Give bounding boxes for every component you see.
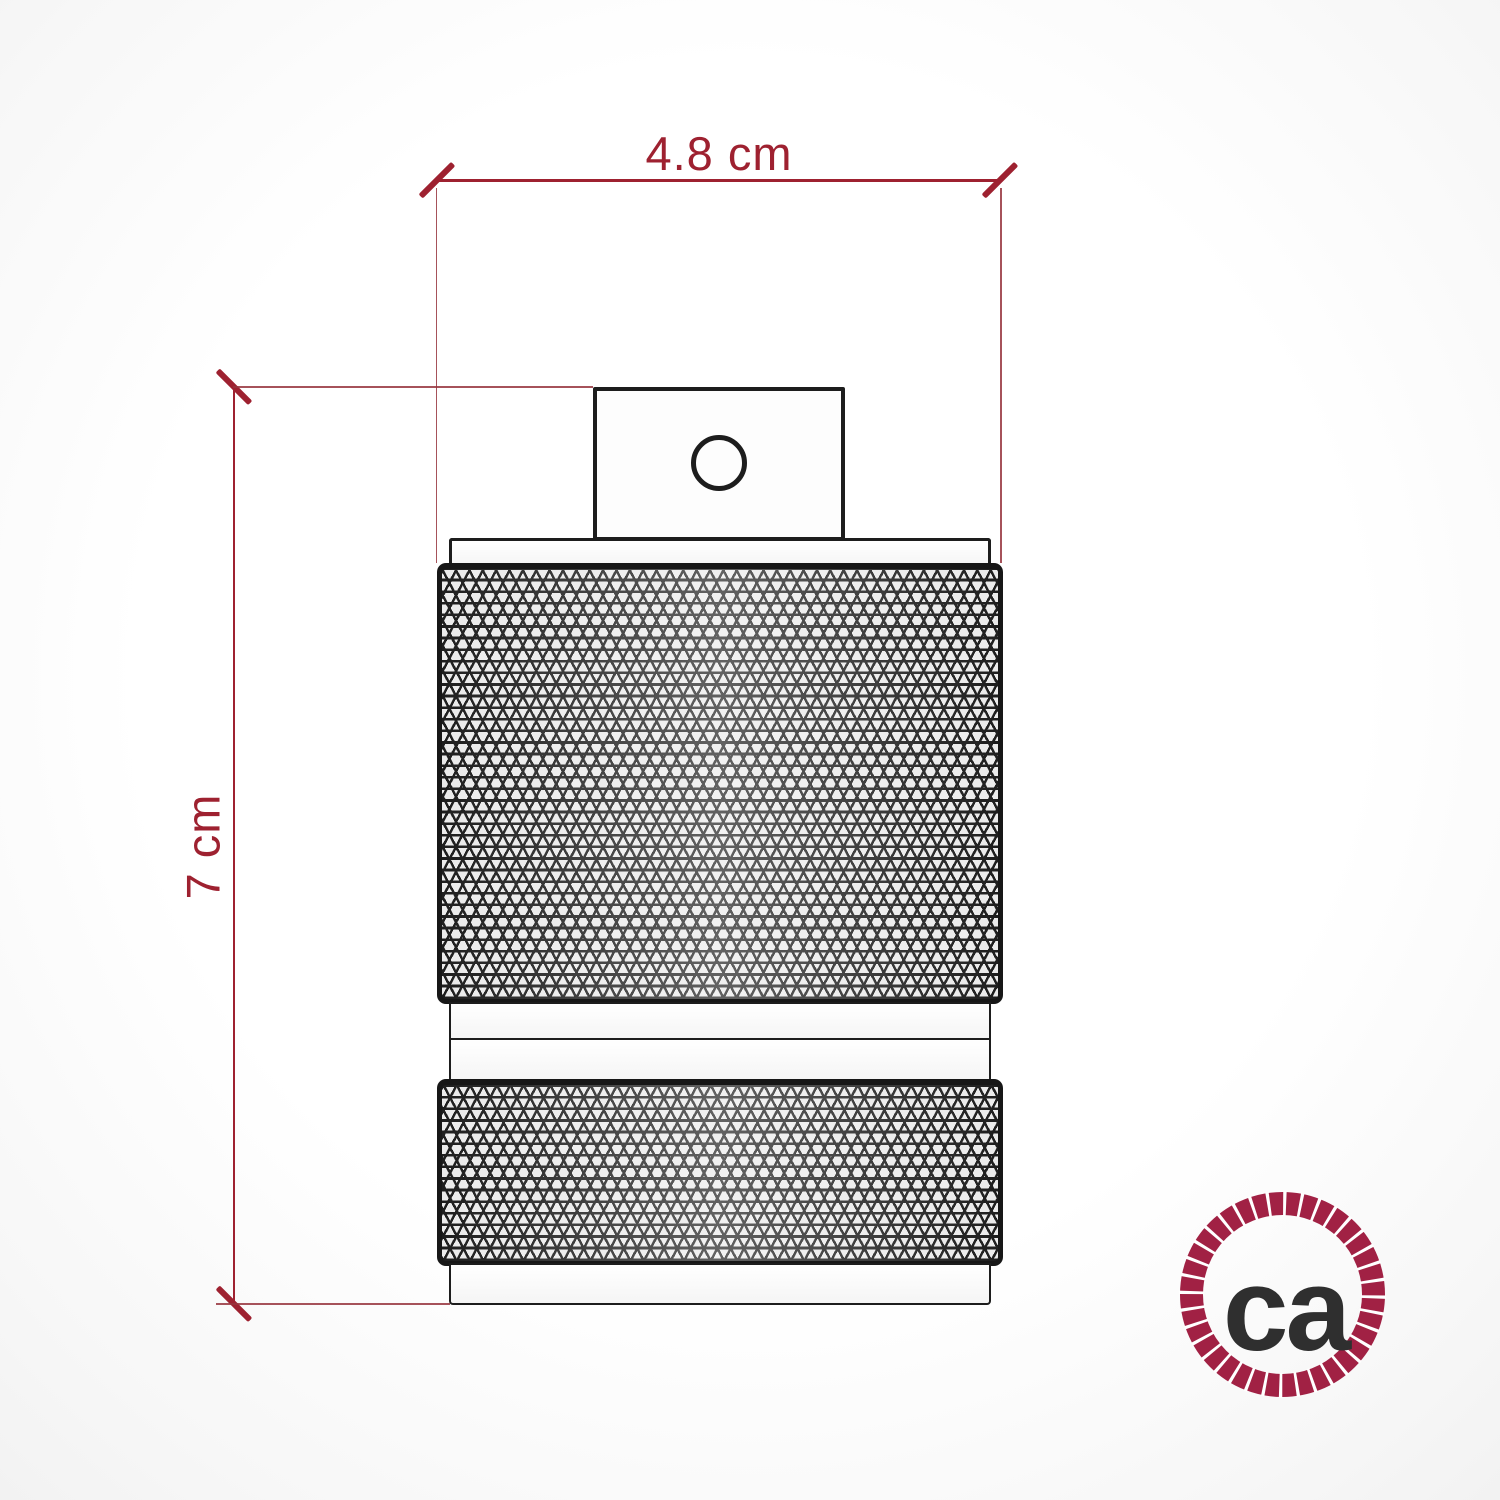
bottom-cap <box>449 1263 991 1305</box>
technical-drawing-canvas: 4.8 cm 7 cm ca <box>0 0 1500 1500</box>
extension-line-left <box>436 188 438 563</box>
logo-text: ca <box>1178 1202 1393 1417</box>
extension-line-bottom <box>216 1303 450 1305</box>
smooth-ring-lower <box>449 1038 991 1081</box>
width-dimension-label: 4.8 cm <box>437 126 1001 181</box>
lower-knurled-section <box>437 1079 1003 1266</box>
upper-knurled-section <box>437 563 1003 1004</box>
brand-logo: ca <box>1175 1187 1390 1402</box>
cable-hole <box>691 435 747 491</box>
extension-line-right <box>1000 188 1002 563</box>
height-dimension-label: 7 cm <box>158 387 248 1305</box>
smooth-ring-upper <box>449 1002 991 1041</box>
extension-line-top <box>233 386 593 388</box>
